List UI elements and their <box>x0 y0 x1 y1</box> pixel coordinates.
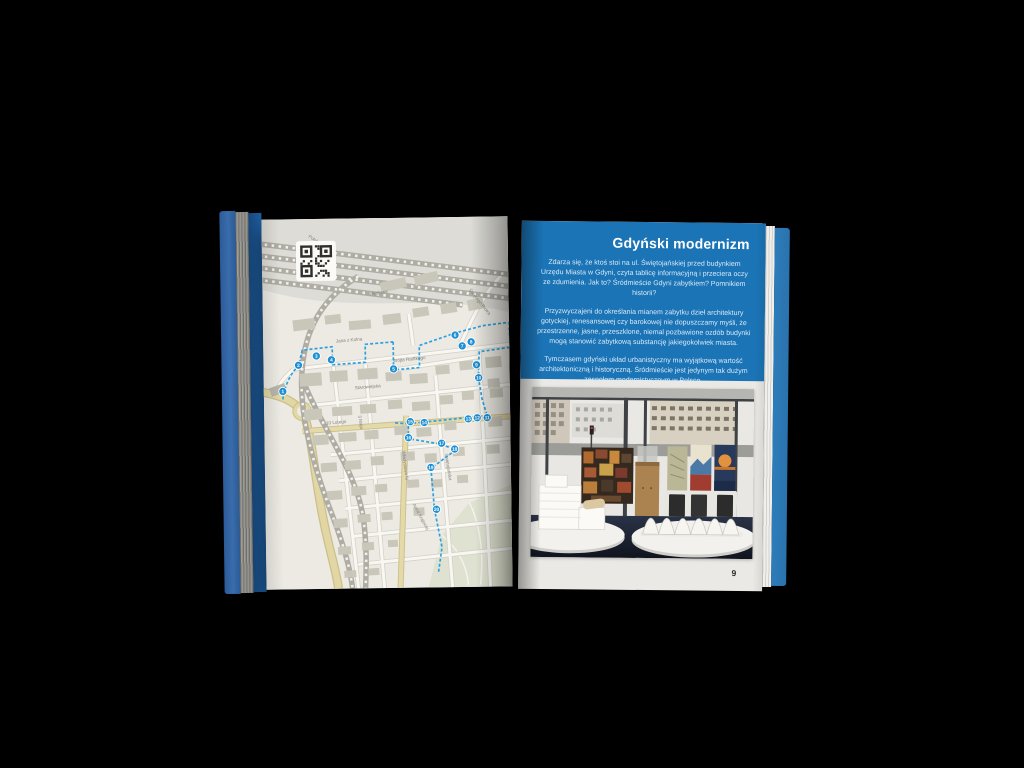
route-marker-number: 17 <box>439 441 445 447</box>
page-number: 9 <box>731 568 736 578</box>
route-marker-number: 2 <box>297 363 300 369</box>
route-marker-number: 10 <box>476 375 482 381</box>
poster-collage <box>581 447 634 504</box>
exhibition-posters <box>665 444 738 525</box>
route-marker-number: 3 <box>315 354 318 360</box>
chapter-header-block: Gdyński modernizm Zdarza się, że ktoś st… <box>520 221 766 382</box>
route-marker-number: 16 <box>406 435 412 441</box>
route-marker-number: 18 <box>452 447 458 453</box>
route-marker-number: 20 <box>434 507 440 513</box>
route-marker-number: 9 <box>475 362 478 368</box>
route-marker-number: 4 <box>330 357 333 363</box>
body-paragraph: Przyzwyczajeni do określania mianem zaby… <box>536 306 752 349</box>
qr-code-icon <box>296 241 337 282</box>
route-marker-number: 13 <box>466 417 472 423</box>
route-marker-number: 7 <box>461 344 464 350</box>
route-marker-number: 8 <box>470 339 473 345</box>
page-title: Gdyński modernizm <box>522 234 750 252</box>
route-marker-number: 1 <box>281 389 284 395</box>
route-marker-number: 15 <box>408 419 414 425</box>
route-marker-number: 6 <box>454 333 457 339</box>
route-marker-number: 12 <box>475 415 481 421</box>
map-page: PolskaWęglowaJana z KolnaŚwiętego Piotra… <box>261 216 512 589</box>
body-paragraph: Tymczasem gdyński układ urbanistyczny ma… <box>535 355 751 388</box>
blue-page-bleed-edge <box>771 228 790 586</box>
text-page: Gdyński modernizm Zdarza się, że ktoś st… <box>518 221 766 592</box>
route-marker-number: 5 <box>392 367 395 373</box>
city-map: PolskaWęglowaJana z KolnaŚwiętego Piotra… <box>261 216 512 589</box>
body-paragraph: Zdarza się, że ktoś stoi na ul. Świętoja… <box>536 258 752 301</box>
exhibition-photo <box>530 387 754 559</box>
route-marker-number: 11 <box>485 415 490 421</box>
black-backdrop: PolskaWęglowaJana z KolnaŚwiętego Piotra… <box>0 0 1024 768</box>
route-marker-number: 19 <box>428 465 434 471</box>
wooden-cabinet <box>635 446 660 518</box>
route-marker-number: 14 <box>422 420 428 426</box>
